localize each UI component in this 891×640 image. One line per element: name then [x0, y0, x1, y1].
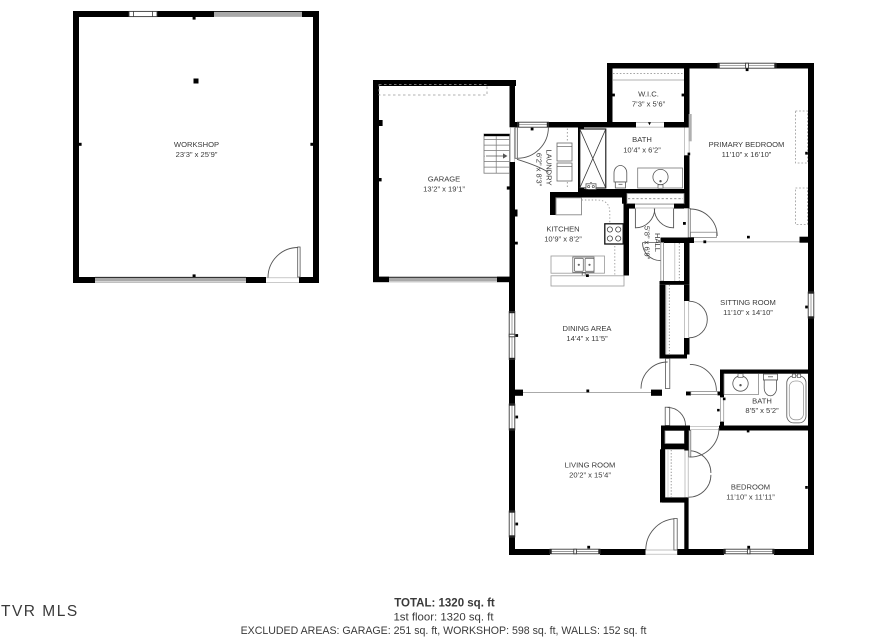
svg-text:10’9” x 8’2”: 10’9” x 8’2” [544, 235, 582, 244]
svg-text:13’2” x 19’1”: 13’2” x 19’1” [423, 185, 465, 194]
svg-text:TOTAL: 1320 sq. ft: TOTAL: 1320 sq. ft [394, 598, 495, 610]
svg-text:BATH: BATH [752, 397, 772, 406]
svg-text:7’3” x 5’6”: 7’3” x 5’6” [632, 100, 666, 109]
svg-text:LAUNDRY: LAUNDRY [545, 149, 554, 185]
svg-text:EXCLUDED AREAS: GARAGE: 251 sq: EXCLUDED AREAS: GARAGE: 251 sq. ft, WORK… [241, 625, 647, 637]
svg-text:23’3” x 25’9”: 23’3” x 25’9” [176, 150, 218, 159]
svg-text:BATH: BATH [632, 135, 652, 144]
svg-text:LIVING ROOM: LIVING ROOM [565, 461, 616, 470]
svg-text:SITTING ROOM: SITTING ROOM [720, 298, 776, 307]
svg-text:11’10” x 11’11”: 11’10” x 11’11” [726, 493, 775, 502]
svg-text:BEDROOM: BEDROOM [731, 483, 770, 492]
svg-text:DINING AREA: DINING AREA [563, 324, 613, 333]
svg-text:11’10” x 16’10”: 11’10” x 16’10” [722, 150, 772, 159]
svg-text:11’10” x 14’10”: 11’10” x 14’10” [723, 308, 773, 317]
svg-text:14’4” x 11’5”: 14’4” x 11’5” [566, 334, 608, 343]
svg-text:WORKSHOP: WORKSHOP [174, 140, 219, 149]
svg-text:1st floor: 1320 sq. ft: 1st floor: 1320 sq. ft [393, 612, 494, 624]
svg-text:W.I.C.: W.I.C. [638, 90, 659, 99]
svg-text:6’2” x 8’3”: 6’2” x 8’3” [535, 153, 544, 187]
svg-text:PRIMARY BEDROOM: PRIMARY BEDROOM [709, 140, 785, 149]
svg-text:8’5” x 5’2”: 8’5” x 5’2” [745, 406, 779, 415]
svg-text:KITCHEN: KITCHEN [546, 225, 579, 234]
svg-text:5’8” x 6’9”: 5’8” x 6’9” [643, 226, 652, 260]
svg-text:TVR MLS: TVR MLS [1, 603, 79, 620]
svg-text:GARAGE: GARAGE [428, 175, 461, 184]
svg-text:20’2” x 15’4”: 20’2” x 15’4” [569, 471, 611, 480]
svg-text:10’4” x 6’2”: 10’4” x 6’2” [623, 146, 661, 155]
